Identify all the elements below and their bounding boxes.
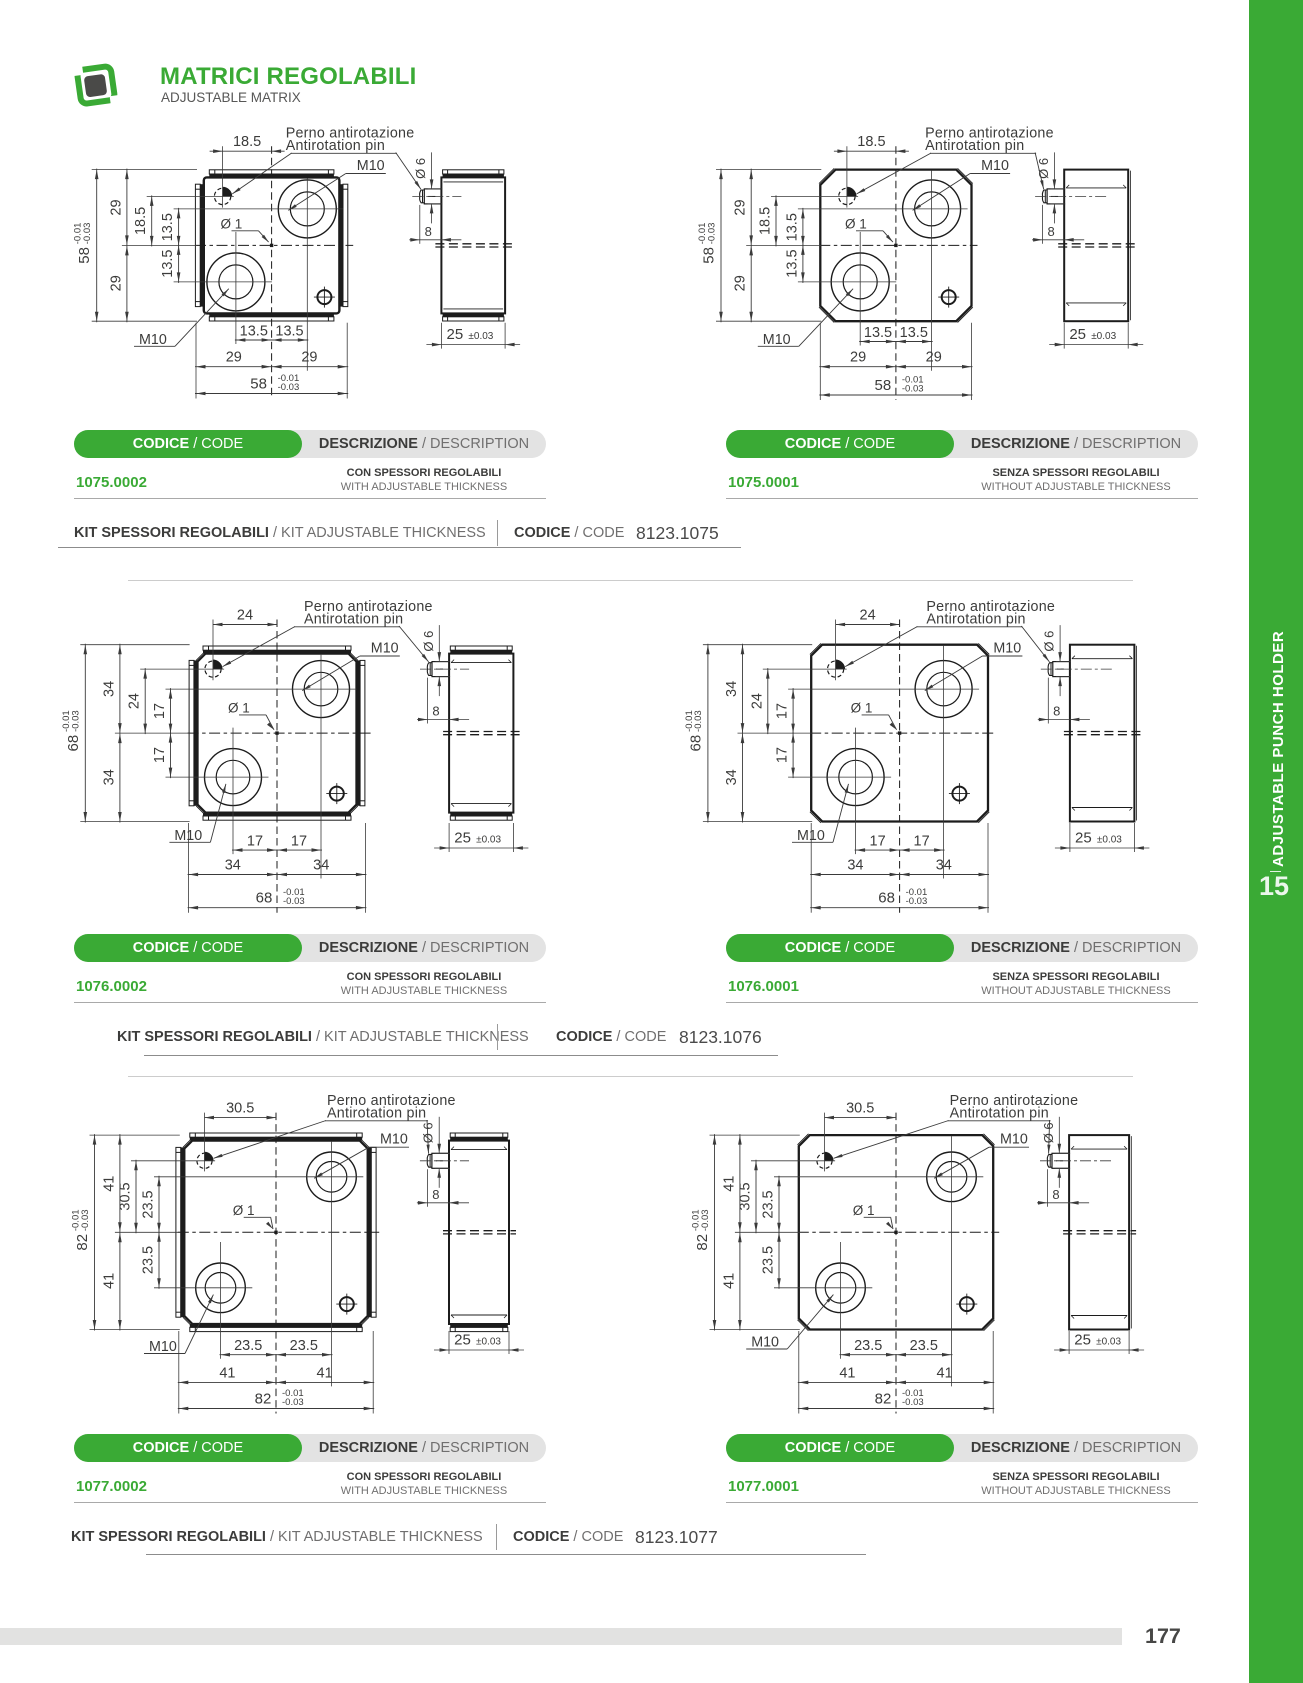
svg-text:23.5: 23.5 xyxy=(290,1338,318,1354)
svg-text:Ø 1: Ø 1 xyxy=(845,217,867,232)
svg-text:-0.03: -0.03 xyxy=(693,710,704,732)
svg-text:M10: M10 xyxy=(981,158,1009,174)
svg-text:17: 17 xyxy=(775,703,791,719)
svg-text:8: 8 xyxy=(1052,1187,1059,1202)
svg-text:Antirotation pin: Antirotation pin xyxy=(950,1106,1049,1122)
svg-text:68: 68 xyxy=(687,735,704,752)
svg-text:82: 82 xyxy=(74,1234,91,1251)
svg-text:±0.03: ±0.03 xyxy=(1097,835,1122,846)
svg-text:13.5: 13.5 xyxy=(240,324,268,340)
svg-text:Ø 1: Ø 1 xyxy=(221,217,243,232)
svg-text:Antirotation pin: Antirotation pin xyxy=(286,138,385,154)
svg-text:±0.03: ±0.03 xyxy=(1096,1337,1121,1348)
svg-text:58: 58 xyxy=(250,376,267,393)
svg-text:24: 24 xyxy=(749,693,765,709)
svg-text:M10: M10 xyxy=(139,332,167,348)
svg-text:30.5: 30.5 xyxy=(846,1101,874,1117)
svg-text:18.5: 18.5 xyxy=(133,207,149,235)
svg-text:23.5: 23.5 xyxy=(141,1190,157,1218)
svg-text:13.5: 13.5 xyxy=(784,213,800,241)
svg-text:-0.03: -0.03 xyxy=(71,710,82,732)
svg-text:41: 41 xyxy=(839,1365,855,1381)
svg-text:M10: M10 xyxy=(751,1335,779,1351)
svg-text:Ø 6: Ø 6 xyxy=(1036,158,1051,179)
svg-text:41: 41 xyxy=(219,1365,235,1381)
svg-text:23.5: 23.5 xyxy=(910,1338,938,1354)
svg-text:-0.03: -0.03 xyxy=(700,1209,711,1231)
svg-text:13.5: 13.5 xyxy=(900,325,928,341)
svg-text:-0.03: -0.03 xyxy=(902,384,924,395)
svg-text:8: 8 xyxy=(425,224,432,239)
svg-text:8: 8 xyxy=(1053,704,1060,719)
svg-text:8: 8 xyxy=(1047,224,1054,239)
svg-text:23.5: 23.5 xyxy=(141,1246,157,1274)
svg-text:82: 82 xyxy=(255,1391,272,1408)
svg-text:18.5: 18.5 xyxy=(857,134,885,150)
svg-text:82: 82 xyxy=(875,1391,892,1408)
svg-text:Ø 1: Ø 1 xyxy=(233,1203,255,1218)
svg-text:17: 17 xyxy=(870,834,886,850)
svg-text:±0.03: ±0.03 xyxy=(1091,331,1116,342)
svg-text:68: 68 xyxy=(878,890,895,907)
svg-text:34: 34 xyxy=(101,769,117,785)
svg-text:30.5: 30.5 xyxy=(738,1182,754,1210)
svg-text:Ø 6: Ø 6 xyxy=(421,631,436,652)
svg-text:M10: M10 xyxy=(174,828,202,844)
svg-text:29: 29 xyxy=(301,350,317,366)
svg-text:Ø 6: Ø 6 xyxy=(413,158,428,179)
svg-text:M10: M10 xyxy=(371,641,399,657)
svg-text:M10: M10 xyxy=(1000,1132,1028,1148)
svg-text:29: 29 xyxy=(733,199,749,215)
svg-text:18.5: 18.5 xyxy=(758,207,774,235)
svg-text:34: 34 xyxy=(225,858,241,874)
svg-text:M10: M10 xyxy=(763,332,791,348)
svg-text:13.5: 13.5 xyxy=(275,324,303,340)
svg-text:±0.03: ±0.03 xyxy=(476,835,501,846)
svg-text:23.5: 23.5 xyxy=(854,1338,882,1354)
svg-text:34: 34 xyxy=(936,858,952,874)
svg-text:-0.03: -0.03 xyxy=(283,896,305,907)
svg-text:±0.03: ±0.03 xyxy=(476,1337,501,1348)
svg-text:8: 8 xyxy=(432,704,439,719)
svg-text:25: 25 xyxy=(1069,326,1086,343)
svg-text:68: 68 xyxy=(256,890,273,907)
svg-text:23.5: 23.5 xyxy=(234,1338,262,1354)
svg-text:13.5: 13.5 xyxy=(864,325,892,341)
svg-text:±0.03: ±0.03 xyxy=(468,331,493,342)
svg-text:M10: M10 xyxy=(380,1132,408,1148)
svg-text:41: 41 xyxy=(317,1365,333,1381)
svg-text:41: 41 xyxy=(721,1273,737,1289)
svg-text:25: 25 xyxy=(454,1332,471,1349)
svg-text:Antirotation pin: Antirotation pin xyxy=(327,1106,426,1122)
svg-text:Antirotation pin: Antirotation pin xyxy=(304,612,403,628)
svg-text:25: 25 xyxy=(1075,830,1092,847)
svg-text:58: 58 xyxy=(76,247,93,264)
svg-text:23.5: 23.5 xyxy=(761,1190,777,1218)
svg-text:-0.03: -0.03 xyxy=(82,223,93,245)
svg-text:-0.03: -0.03 xyxy=(80,1209,91,1231)
svg-text:Ø 1: Ø 1 xyxy=(851,701,873,716)
svg-text:17: 17 xyxy=(775,747,791,763)
svg-text:M10: M10 xyxy=(149,1339,177,1355)
svg-text:-0.03: -0.03 xyxy=(906,896,928,907)
svg-text:30.5: 30.5 xyxy=(226,1101,254,1117)
svg-text:17: 17 xyxy=(291,834,307,850)
svg-text:41: 41 xyxy=(101,1176,117,1192)
svg-text:29: 29 xyxy=(108,199,124,215)
svg-text:23.5: 23.5 xyxy=(761,1246,777,1274)
svg-text:82: 82 xyxy=(694,1234,711,1251)
svg-text:24: 24 xyxy=(127,693,143,709)
svg-text:34: 34 xyxy=(724,681,740,697)
svg-text:34: 34 xyxy=(101,681,117,697)
svg-text:-0.03: -0.03 xyxy=(282,1397,304,1408)
svg-text:17: 17 xyxy=(247,834,263,850)
svg-text:29: 29 xyxy=(226,350,242,366)
svg-text:24: 24 xyxy=(237,608,253,624)
svg-text:25: 25 xyxy=(1074,1332,1091,1349)
svg-text:13.5: 13.5 xyxy=(160,249,176,277)
svg-text:17: 17 xyxy=(152,747,168,763)
svg-text:34: 34 xyxy=(724,769,740,785)
svg-text:13.5: 13.5 xyxy=(784,249,800,277)
svg-text:Ø 6: Ø 6 xyxy=(421,1122,436,1143)
svg-text:34: 34 xyxy=(847,858,863,874)
svg-text:18.5: 18.5 xyxy=(233,134,261,150)
svg-text:M10: M10 xyxy=(993,641,1021,657)
svg-text:Ø 1: Ø 1 xyxy=(228,701,250,716)
svg-text:29: 29 xyxy=(108,275,124,291)
svg-text:13.5: 13.5 xyxy=(160,213,176,241)
svg-text:41: 41 xyxy=(101,1273,117,1289)
svg-text:17: 17 xyxy=(152,703,168,719)
svg-text:-0.03: -0.03 xyxy=(278,382,300,393)
svg-text:-0.03: -0.03 xyxy=(902,1397,924,1408)
svg-text:41: 41 xyxy=(721,1176,737,1192)
svg-text:-0.03: -0.03 xyxy=(706,223,717,245)
svg-text:Antirotation pin: Antirotation pin xyxy=(925,138,1024,154)
svg-text:Ø 6: Ø 6 xyxy=(1041,1122,1056,1143)
svg-text:25: 25 xyxy=(447,326,464,343)
svg-text:17: 17 xyxy=(914,834,930,850)
svg-text:29: 29 xyxy=(850,350,866,366)
svg-text:M10: M10 xyxy=(357,158,385,174)
svg-text:30.5: 30.5 xyxy=(118,1182,134,1210)
svg-text:Antirotation pin: Antirotation pin xyxy=(926,612,1025,628)
svg-text:Ø 1: Ø 1 xyxy=(853,1203,875,1218)
svg-text:M10: M10 xyxy=(797,828,825,844)
svg-text:29: 29 xyxy=(733,275,749,291)
svg-text:34: 34 xyxy=(313,858,329,874)
svg-text:8: 8 xyxy=(432,1187,439,1202)
svg-text:58: 58 xyxy=(701,247,718,264)
svg-text:41: 41 xyxy=(937,1365,953,1381)
svg-text:25: 25 xyxy=(454,830,471,847)
svg-text:Ø 6: Ø 6 xyxy=(1042,631,1057,652)
svg-text:24: 24 xyxy=(860,608,876,624)
svg-text:58: 58 xyxy=(875,377,892,394)
svg-text:68: 68 xyxy=(65,735,82,752)
svg-text:29: 29 xyxy=(926,350,942,366)
